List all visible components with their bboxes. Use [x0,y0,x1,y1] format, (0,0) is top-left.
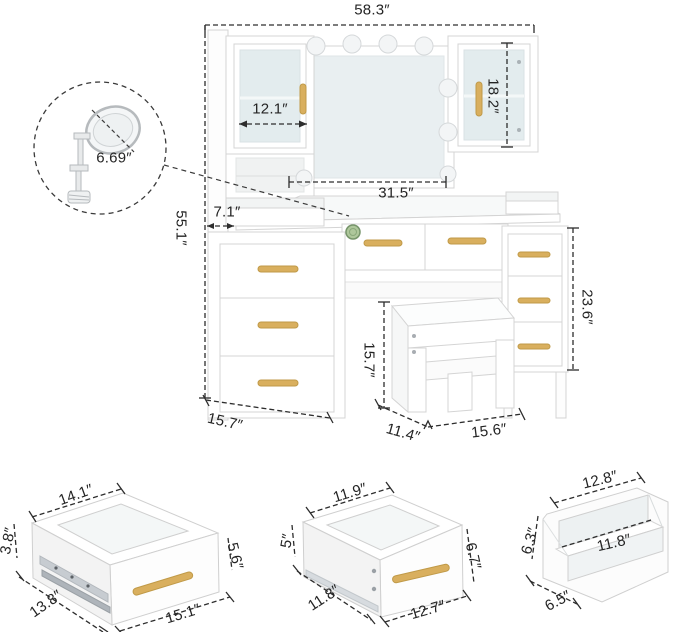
mirror [298,46,454,188]
left-cabinet [226,36,314,154]
right-riser-shelf [506,192,558,214]
drawer-handle [258,380,298,386]
drawer-handle [364,240,402,246]
light-bulb [296,170,312,186]
light-bulb [415,37,433,55]
dim-stool-height: 15.7″ [362,342,377,378]
center-drawers [342,224,508,270]
cabinet-handle [476,82,482,116]
green-knob [346,225,360,239]
dim-mirror-width: 31.5″ [378,186,414,201]
light-bulb [343,35,361,53]
drawer-handle [258,322,298,328]
light-bulb [439,79,457,97]
dim-drawer-small-back-height: 5″ [278,533,295,549]
drawer-handle [518,298,550,303]
dim-magnifier-diameter: 6.69″ [96,151,132,166]
light-bulb [379,35,397,53]
light-bulb [439,123,457,141]
cabinet-handle [300,84,306,114]
left-riser-shelf [226,198,324,226]
dim-right-cabinet-height: 18.2″ [486,78,501,114]
dim-left-cabinet-width: 12.1″ [252,102,288,117]
dim-overall-width: 58.3″ [354,3,390,18]
back-stretcher [345,282,502,298]
drawer-handle [448,238,486,244]
drawer-handle [518,252,550,257]
dim-right-drawers-height: 23.6″ [580,289,595,325]
vanity-illustration [0,0,679,632]
product-dimension-diagram: 58.3″ 55.1″ 12.1″ 18.2″ 31.5″ 7.1″ 23.6″… [0,0,679,632]
left-drawer-stack [208,232,345,418]
stool [392,298,514,412]
light-bulb [440,166,456,182]
light-bulb [307,37,325,55]
dim-side-shelf-depth: 7.1″ [214,205,241,220]
drawer-handle [258,266,298,272]
dim-overall-height: 55.1″ [174,210,189,246]
dim-stool-width: 15.6″ [470,421,507,440]
drawer-handle [518,344,550,349]
